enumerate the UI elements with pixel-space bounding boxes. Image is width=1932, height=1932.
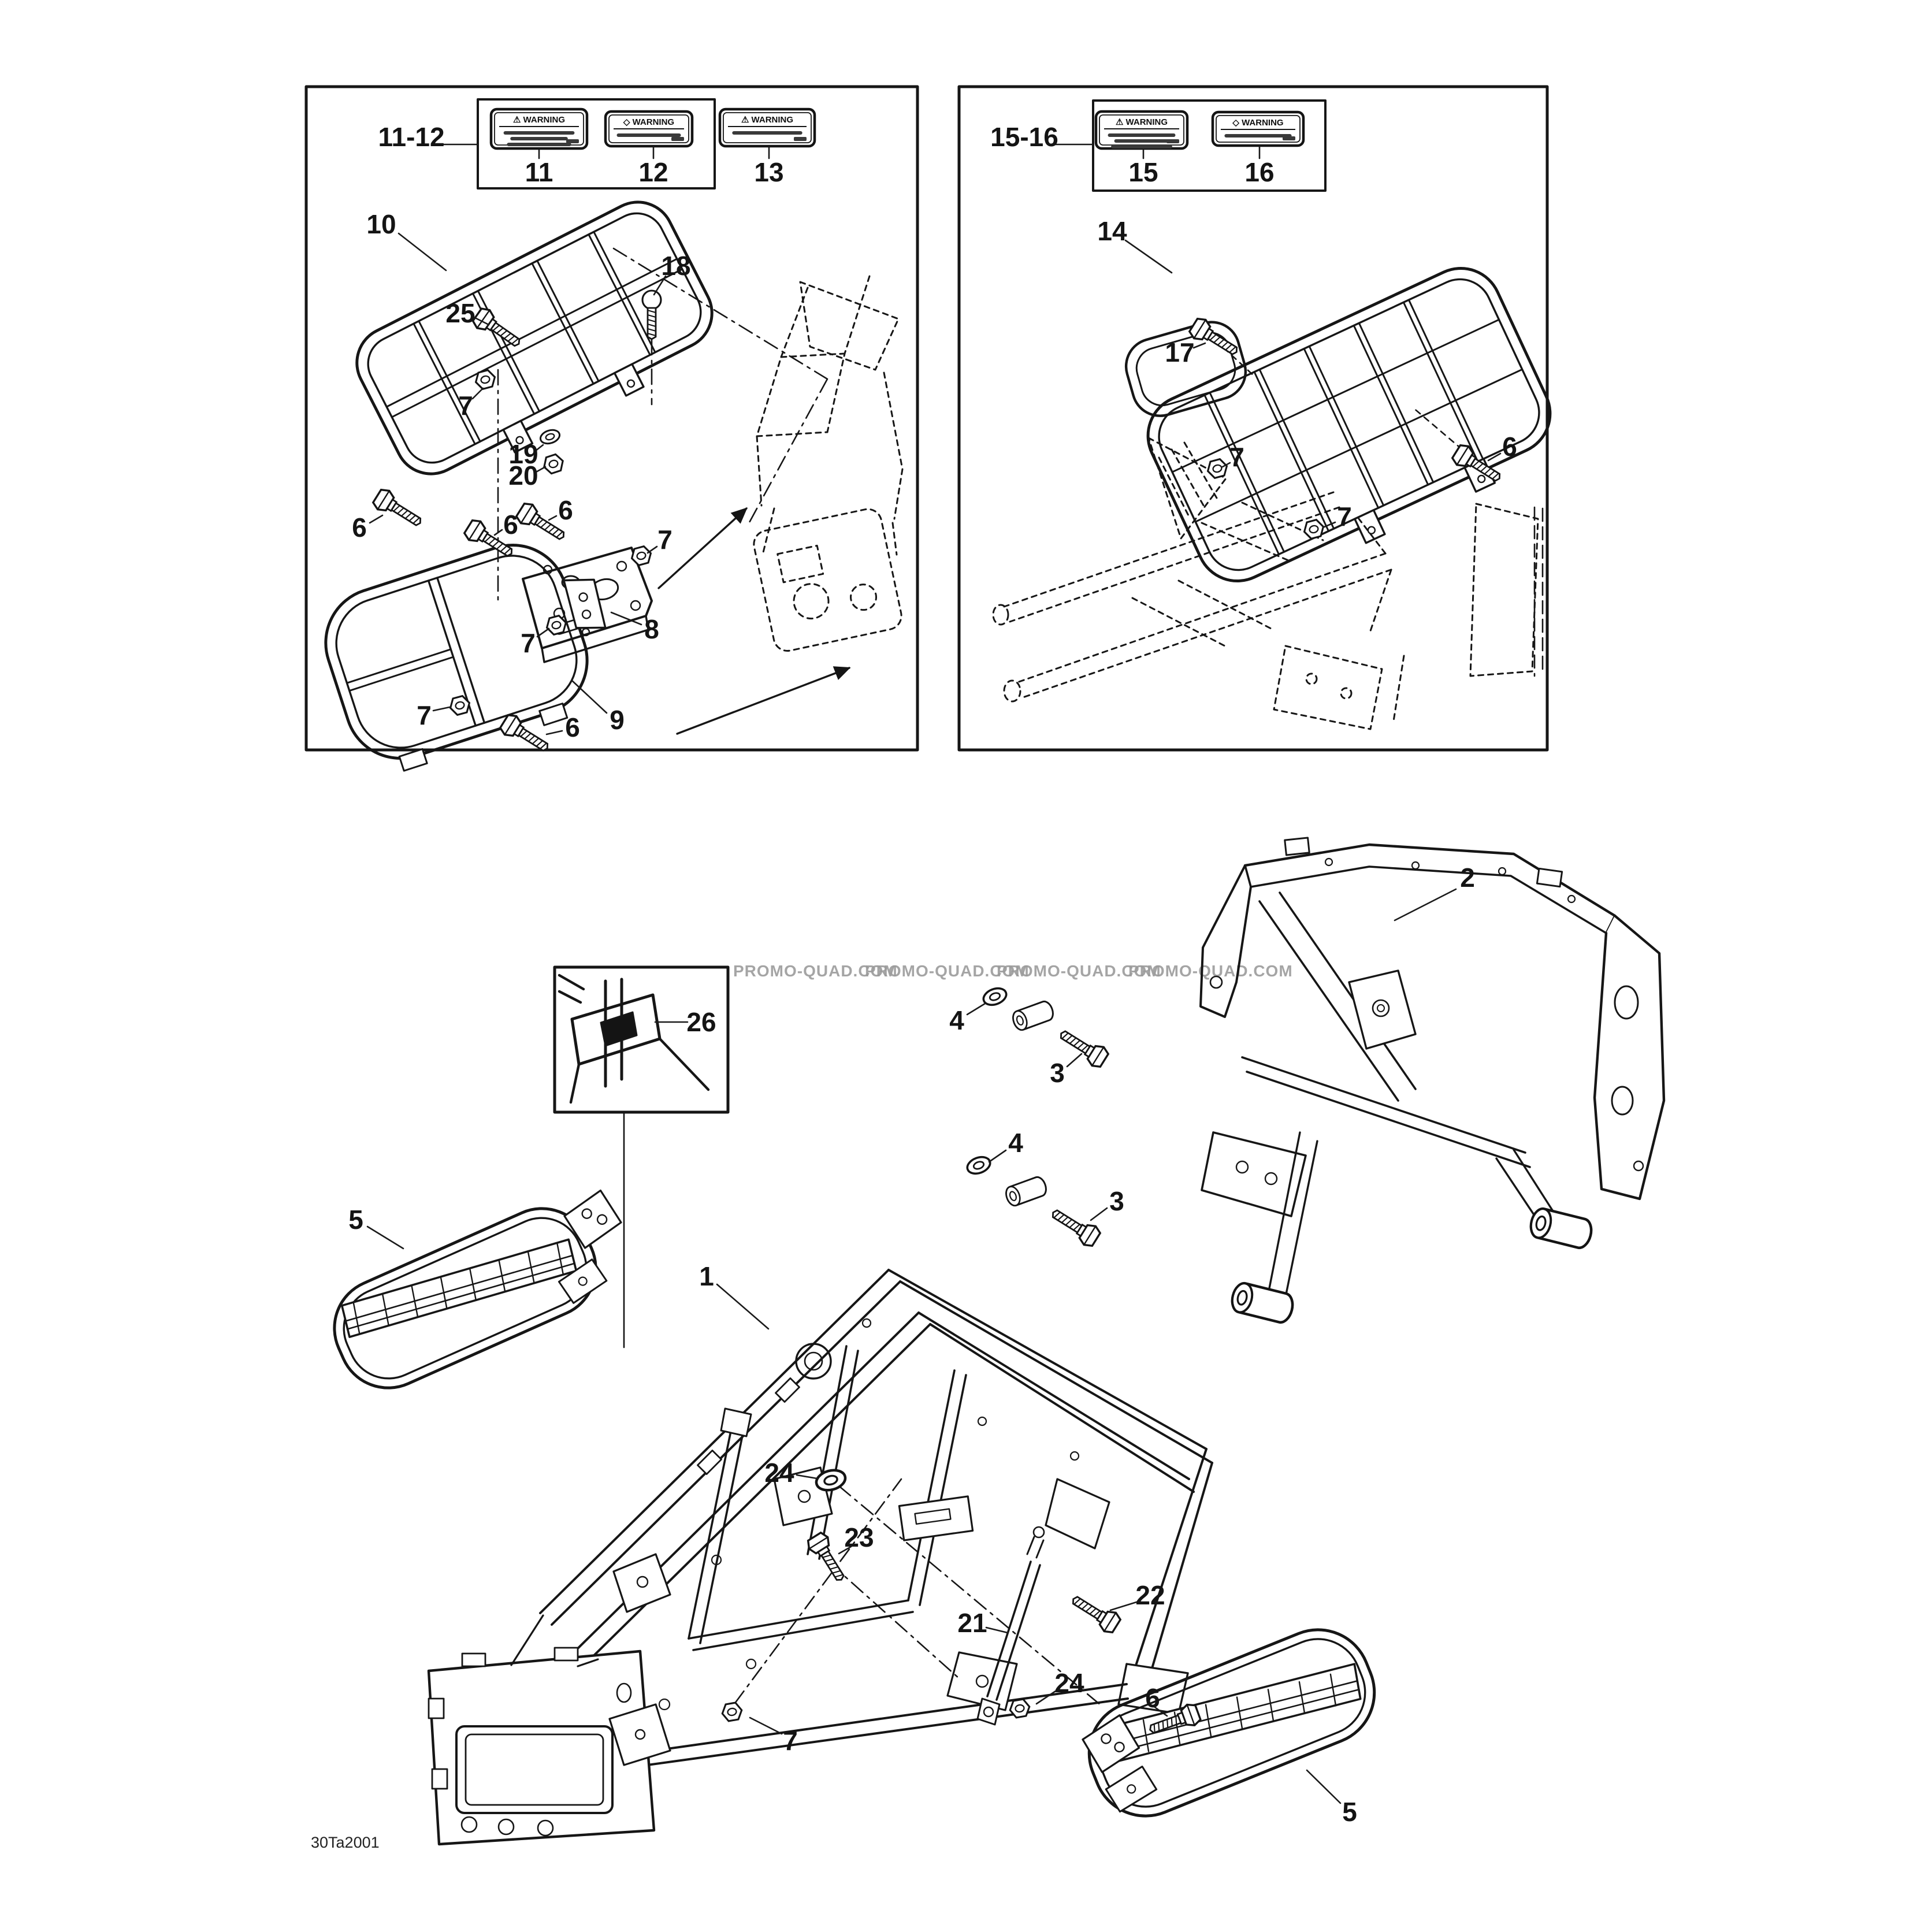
callout-label: 8	[644, 614, 659, 644]
warning-label-header: ◇ WARNING	[623, 117, 674, 127]
callout-leader-line	[549, 516, 556, 520]
fastener-washer	[538, 428, 561, 445]
callout-label: 10	[366, 209, 396, 239]
callout-label: 3	[1109, 1186, 1124, 1216]
callout-label: 1	[699, 1261, 714, 1291]
callout-label: 11	[525, 157, 553, 187]
callout-leader-line	[473, 388, 483, 399]
callout-leader-line	[399, 233, 446, 270]
callout-label: 18	[661, 251, 690, 281]
panel-border-left	[306, 87, 917, 750]
callout-leader-line	[367, 1227, 403, 1249]
callout-leader-line	[1125, 240, 1172, 273]
watermark-text: PROMO-QUAD.COM	[1128, 962, 1293, 980]
callout-label: 15	[1128, 157, 1158, 187]
fastener-bushing	[1229, 1281, 1295, 1325]
callout-leader-line	[989, 1150, 1006, 1162]
callout-leader-line	[1395, 889, 1456, 920]
warning-label-text-line	[504, 131, 575, 135]
warning-label-text-line	[507, 143, 571, 146]
callout-leader-line	[370, 515, 382, 523]
callout-label: 6	[1145, 1683, 1160, 1713]
callout-label: 16	[1244, 157, 1274, 187]
callout-leader-line	[1307, 1770, 1340, 1803]
warning-label-text-line	[617, 133, 681, 137]
callout-label: 7	[521, 628, 536, 658]
warning-label-text-line	[732, 131, 802, 135]
front-rack-panel	[306, 87, 917, 782]
callout-label: 21	[957, 1608, 987, 1638]
callout-label: 7	[458, 391, 473, 421]
scanned-parts-diagram: PROMO-QUAD.COMPROMO-QUAD.COMPROMO-QUAD.C…	[0, 0, 1932, 1932]
callout-label: 24	[764, 1458, 794, 1488]
callout-label: 2	[1460, 863, 1475, 893]
callout-label: 23	[844, 1522, 874, 1552]
warning-label-text-line	[1224, 134, 1291, 138]
fastener-nut	[1302, 518, 1325, 540]
callout-label: 6	[503, 510, 518, 540]
callout-label: 15-16	[990, 122, 1058, 152]
callout-label: 6	[558, 495, 573, 525]
callout-leader-line	[986, 1628, 1008, 1633]
callout-label: 12	[638, 157, 668, 187]
label-16: ◇ WARNING	[1213, 112, 1303, 146]
callout-leader-line	[1067, 1054, 1082, 1067]
callout-leader-line	[572, 681, 607, 713]
warning-label-code	[1283, 136, 1295, 140]
callout-label: 7	[783, 1726, 798, 1756]
callout-label: 3	[1050, 1058, 1065, 1088]
callout-label: 7	[1337, 501, 1352, 532]
ghost-front-frame	[751, 276, 904, 653]
callout-label: 17	[1165, 337, 1194, 367]
warning-label-header: ⚠ WARNING	[513, 115, 565, 125]
fastener-nut	[474, 369, 497, 390]
callout-label: 7	[417, 700, 432, 730]
callout-label: 26	[686, 1007, 716, 1037]
warning-label-text-line	[510, 137, 568, 140]
warning-labels: ⚠ WARNING◇ WARNING⚠ WARNING⚠ WARNING◇ WA…	[491, 109, 1303, 148]
warning-label-header: ⚠ WARNING	[741, 115, 793, 125]
warning-label-text-line	[1111, 145, 1172, 148]
fastener-nut	[721, 1702, 744, 1722]
fastener-bolt	[371, 487, 426, 533]
callout-leader-line	[1091, 1208, 1107, 1220]
fastener-washer	[965, 1154, 992, 1177]
fastener-bolt	[1068, 1590, 1123, 1636]
rear-frame	[1201, 838, 1664, 1297]
assembly-arrow	[677, 668, 849, 734]
doc-number: 30Ta2001	[311, 1834, 380, 1851]
label-13: ⚠ WARNING	[720, 109, 815, 146]
callout-label: 13	[754, 157, 783, 187]
fastener-bushing	[1528, 1207, 1594, 1250]
callout-label: 11-12	[378, 122, 444, 152]
callout-label: 5	[1342, 1797, 1357, 1827]
footrest-left	[319, 1177, 646, 1403]
callout-leader-line	[717, 1284, 768, 1329]
warning-label-text-line	[1114, 139, 1169, 143]
callout-leader-line	[648, 547, 657, 553]
callout-label: 4	[949, 1005, 964, 1035]
label-15: ⚠ WARNING	[1096, 112, 1187, 148]
callout-label: 7	[657, 525, 673, 555]
callout-leader-line	[433, 707, 449, 711]
diagram-canvas: PROMO-QUAD.COMPROMO-QUAD.COMPROMO-QUAD.C…	[0, 0, 1932, 1932]
callout-label: 14	[1097, 216, 1127, 246]
fastener-bolt	[471, 306, 525, 353]
fastener-washer	[981, 986, 1008, 1008]
callout-leader-line	[967, 1004, 985, 1015]
callout-label: 25	[445, 298, 475, 328]
callout-label: 6	[1502, 432, 1517, 462]
callout-leader-line	[1194, 343, 1205, 348]
callout-leader-line	[750, 1718, 782, 1734]
callout-label: 9	[610, 705, 625, 735]
warning-label-code	[1166, 139, 1179, 143]
stabilizer-strut	[978, 1527, 1044, 1725]
callout-label: 7	[1229, 442, 1244, 472]
label-12: ◇ WARNING	[605, 112, 692, 146]
callout-label: 20	[508, 460, 538, 491]
warning-label-code	[566, 139, 579, 143]
watermark-row: PROMO-QUAD.COMPROMO-QUAD.COMPROMO-QUAD.C…	[733, 962, 1293, 980]
warning-label-header: ◇ WARNING	[1232, 118, 1283, 128]
callout-leader-line	[547, 731, 562, 734]
callout-label: 6	[565, 712, 580, 742]
callout-label: 22	[1135, 1580, 1165, 1610]
callout-label: 5	[348, 1205, 363, 1235]
callout-label: 24	[1054, 1668, 1084, 1698]
centerline	[1535, 507, 1543, 676]
fastener-bolt	[1047, 1203, 1102, 1249]
fastener-nut	[448, 694, 471, 716]
callout-label: 4	[1008, 1128, 1023, 1158]
fastener-nut	[541, 453, 565, 475]
warning-label-header: ⚠ WARNING	[1116, 117, 1168, 127]
warning-label-code	[671, 137, 684, 141]
fastener-nut	[1206, 458, 1229, 479]
fastener-bushing	[1004, 1175, 1048, 1207]
warning-label-text-line	[1108, 133, 1176, 137]
fastener-bushing	[1010, 1000, 1055, 1032]
callout-label: 6	[352, 512, 367, 543]
callout-leader-line	[1110, 1602, 1136, 1610]
label-11: ⚠ WARNING	[491, 109, 587, 148]
warning-label-code	[794, 137, 807, 141]
